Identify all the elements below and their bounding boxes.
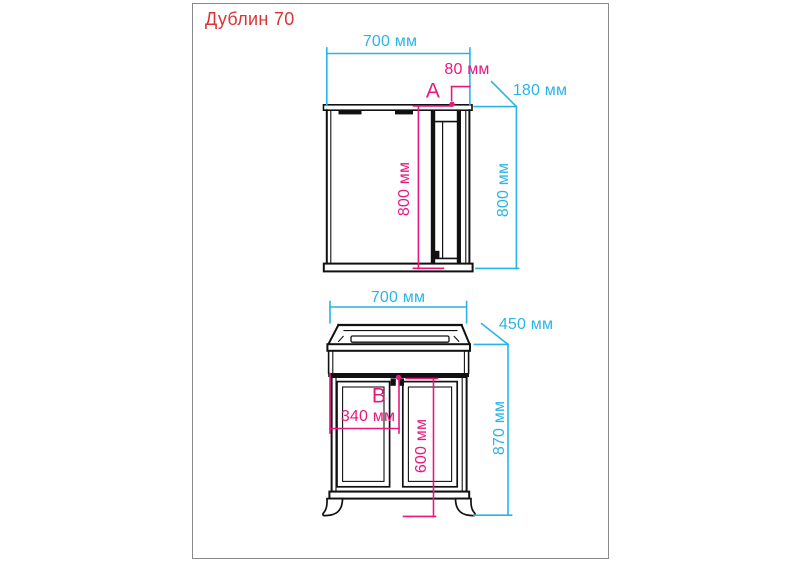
mirror-width-dimension-label: 700 мм	[363, 34, 417, 50]
technical-drawing	[0, 0, 800, 565]
marker-b-label: B	[372, 386, 386, 407]
side-door-handle	[433, 251, 440, 259]
vanity-body-height-dimension-label: 600 мм	[414, 419, 430, 473]
marker-a-label: A	[426, 81, 440, 102]
mirror-height-outer-dimension-label: 800 мм	[496, 163, 512, 217]
mirror-clip-left	[339, 110, 362, 114]
vanity-total-height-dimension-label: 870 мм	[492, 401, 508, 455]
mirror-base	[324, 264, 473, 272]
vanity-handle-left	[391, 378, 396, 385]
sink-basin	[351, 336, 449, 342]
mirror-clip-right	[395, 110, 413, 114]
vanity-width-dimension-label: 700 мм	[371, 290, 425, 306]
vanity-leg-left	[323, 499, 343, 516]
mirror-height-inner-dimension-label: 800 мм	[397, 162, 413, 216]
sink-rim	[327, 344, 470, 351]
screenshot: Дублин 70	[0, 0, 800, 565]
vanity-handle-offset-dimension-label: 340 мм	[341, 409, 395, 425]
door-stile	[457, 110, 461, 263]
vanity-base-rail	[329, 492, 469, 499]
vanity-leg-right	[456, 499, 476, 516]
vanity-depth-dimension-label: 450 мм	[499, 317, 553, 333]
mirror-section-width-dimension-label: 80 мм	[444, 62, 489, 78]
mirror-depth-dimension-label: 180 мм	[513, 83, 567, 99]
mirror-door-divider	[431, 110, 435, 263]
mirror-dimensions-cyan	[327, 48, 519, 268]
mirror-dimensions-pink	[413, 87, 470, 269]
